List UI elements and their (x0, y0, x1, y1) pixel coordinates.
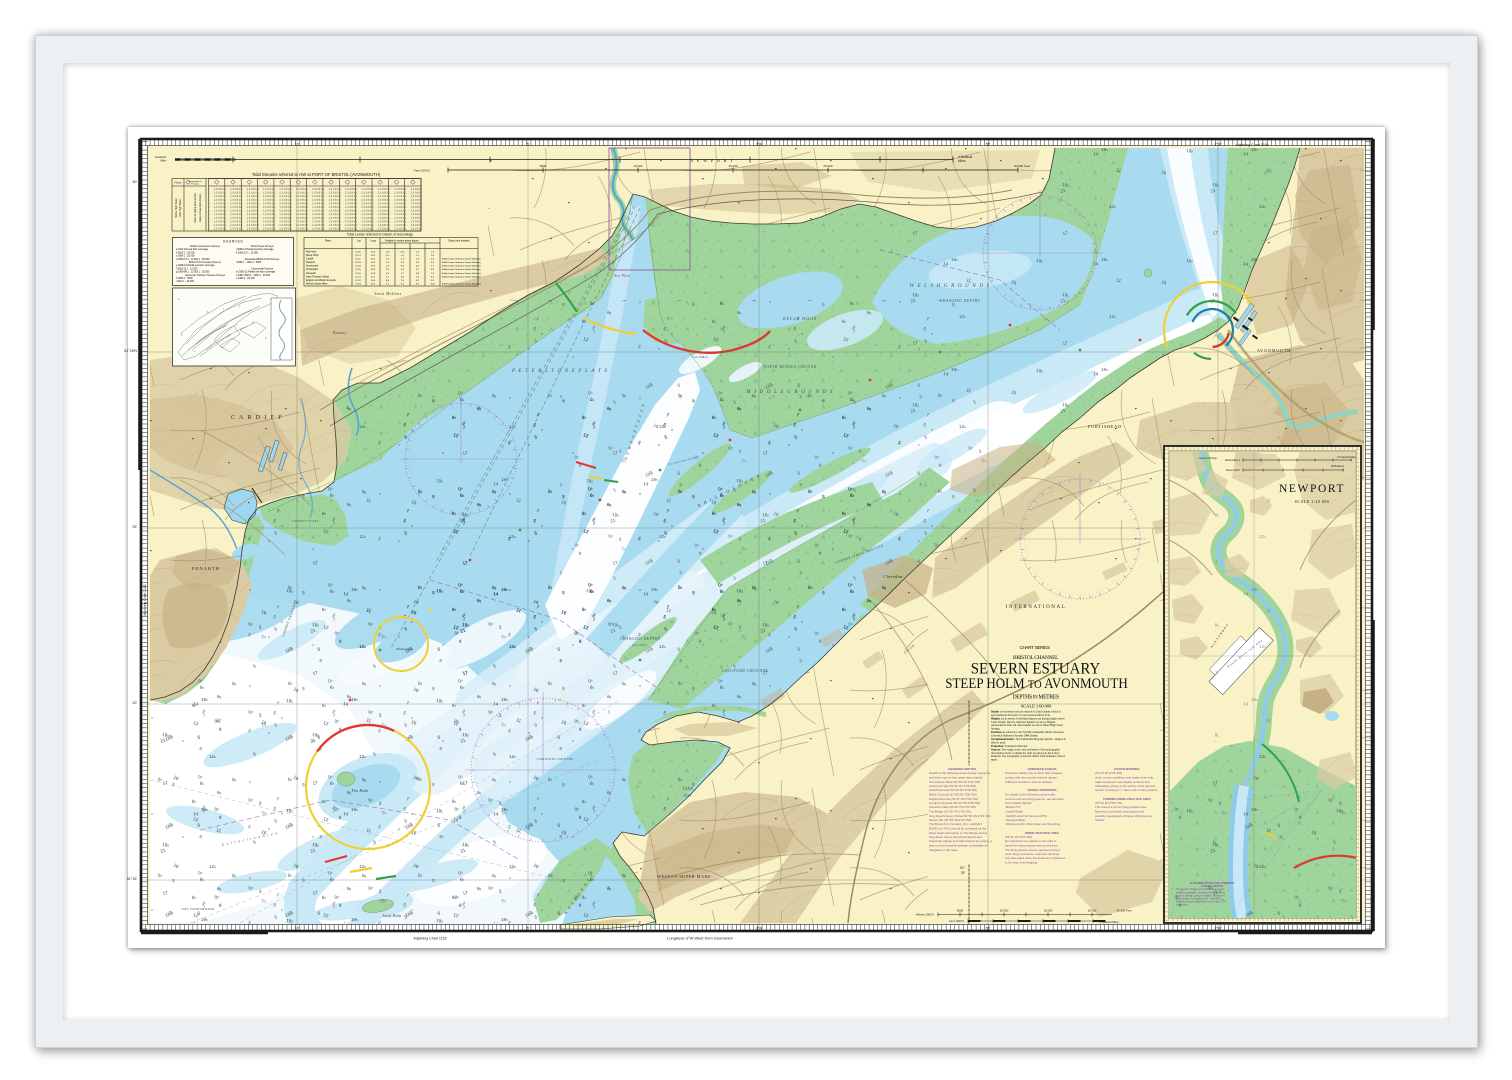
svg-text:3°W: 3°W (756, 927, 763, 931)
svg-text:SAND: SAND (683, 787, 694, 791)
svg-text:-Sharpness Port Information an: -Sharpness Port Information and Reportin… (1005, 822, 1061, 826)
svg-text:51°25′N: 51°25′N (124, 349, 137, 353)
svg-text:NEWPORT: NEWPORT (1279, 483, 1345, 495)
svg-text:5000: 5000 (957, 909, 964, 913)
svg-text:51 22: 51 22 (355, 280, 361, 282)
svg-text:Metres 100 0: Metres 100 0 (1226, 469, 1241, 472)
svg-text:A little below Ordnance Datum: A little below Ordnance Datum (Newlyn) (442, 275, 481, 278)
svg-text:STEEP HOLM TO AVONMOUTH: STEEP HOLM TO AVONMOUTH (945, 676, 1128, 692)
svg-text:51°15′: 51°15′ (127, 877, 137, 881)
svg-text:10 000: 10 000 (633, 164, 643, 168)
svg-text:51 21: 51 21 (355, 255, 361, 257)
svg-text:30 000 Feet: 30 000 Feet (1117, 909, 1132, 913)
svg-text:Clevedon: Clevedon (306, 272, 317, 275)
svg-text:15 000: 15 000 (728, 164, 738, 168)
svg-text:51 23: 51 23 (355, 283, 361, 285)
svg-text:Feet 1000 0: Feet 1000 0 (949, 919, 964, 923)
svg-text:AVONMOUTH: AVONMOUTH (1257, 348, 1291, 353)
svg-text:Clevedon: Clevedon (883, 574, 903, 579)
svg-text:W E L S H G R O U N D S: W E L S H G R O U N D S (910, 284, 991, 289)
svg-text:P E T E R S T O N E F L A T: P E T E R S T O N E F L A T S (511, 369, 608, 374)
svg-text:30′: 30′ (132, 180, 137, 184)
svg-text:Longitude 3°W West from Green: Longitude 3°W West from Greenwich (667, 936, 733, 941)
svg-text:See Plan: See Plan (614, 273, 630, 278)
svg-text:51 21: 51 21 (355, 276, 361, 278)
svg-text:Monkstone: Monkstone (395, 647, 412, 651)
svg-text:2°50′: 2°50′ (1214, 927, 1222, 931)
svg-text:51 20: 51 20 (355, 273, 361, 275)
svg-text:3°W: 3°W (756, 142, 763, 146)
svg-text:PENARTH: PENARTH (192, 566, 220, 571)
svg-text:A little below Ordnance Datum: A little below Ordnance Datum (Newlyn) (442, 282, 481, 285)
svg-text:Usk Patch: Usk Patch (692, 355, 708, 359)
svg-text:Newport Bridge: Newport Bridge (1199, 456, 1217, 460)
svg-text:SEVERN ESTUARY: SEVERN ESTUARY (971, 660, 1101, 677)
svg-text:CHANGING DEPTHS: CHANGING DEPTHS (620, 637, 660, 641)
svg-text:hazard.: hazard. (1095, 818, 1105, 822)
svg-text:Portishead: Portishead (306, 268, 318, 271)
svg-text:51 23: 51 23 (355, 262, 361, 264)
svg-text:NORTH MIDDLE GROUND: NORTH MIDDLE GROUND (762, 365, 817, 369)
svg-text:4 Nautical Miles: 4 Nautical Miles (1099, 920, 1119, 924)
svg-text:After High Water: After High Water (179, 199, 182, 217)
svg-text:1000 Metres: 1000 Metres (1331, 465, 1345, 468)
svg-text:Astronomical Tide. All other h: Astronomical Tide. All other heights are… (991, 724, 1063, 727)
svg-text:20 000 Feet: 20 000 Feet (1014, 164, 1030, 168)
svg-text:Severn Crossing (7.7 miles nor: Severn Crossing (7.7 miles north of this… (1095, 788, 1158, 792)
svg-text:55′: 55′ (986, 142, 991, 146)
svg-text:Position: Position (191, 182, 200, 185)
svg-text:0.5 Nautical Miles: 0.5 Nautical Miles (1337, 456, 1357, 459)
svg-text:to be clear of all shipping.: to be clear of all shipping. (1005, 861, 1038, 865)
svg-text:A little below Ordnance Datum: A little below Ordnance Datum (Newlyn) (442, 268, 481, 271)
svg-text:WELSH HOOK: WELSH HOOK (782, 316, 817, 321)
svg-text:Miles: Miles (958, 159, 966, 163)
svg-text:N E W P O R T: N E W P O R T (690, 158, 734, 163)
svg-text:CHART SERIES: CHART SERIES (1020, 645, 1051, 650)
svg-text:Rumney: Rumney (332, 331, 347, 335)
svg-text:ONE FATHOM BANK: ONE FATHOM BANK (181, 907, 215, 911)
svg-text:10′: 10′ (295, 927, 300, 931)
svg-text:navigation in this area.: navigation in this area. (929, 848, 958, 852)
svg-text:Hours: Hours (175, 181, 183, 185)
svg-text:A little below Ordnance Datum: A little below Ordnance Datum (Newlyn) (442, 265, 481, 268)
svg-text:CARDIFF FLATS: CARDIFF FLATS (292, 519, 319, 523)
svg-text:SCALE 1:20 000: SCALE 1:20 000 (1295, 499, 1330, 504)
svg-text:A little below Ordnance Datum: A little below Ordnance Datum (Newlyn) (442, 258, 481, 261)
svg-text:M I D D L E G R O U N D S: M I D D L E G R O U N D S (745, 390, 833, 395)
svg-text:Sufficient clearance must be a: Sufficient clearance must be allowed. (1005, 780, 1053, 784)
svg-text:Total Levels referred to Datum: Total Levels referred to Datum of Soundi… (347, 233, 413, 237)
svg-text:15 000: 15 000 (1044, 909, 1053, 913)
svg-text:A little below Ordnance Datum: A little below Ordnance Datum (Newlyn) (442, 272, 481, 275)
svg-text:Geographical: Geographical (188, 180, 202, 183)
svg-text:20 000: 20 000 (823, 164, 833, 168)
svg-text:Place: Place (325, 240, 332, 243)
svg-text:WESTON-SUPER-MARE: WESTON-SUPER-MARE (657, 874, 711, 879)
svg-text:25′: 25′ (132, 525, 137, 529)
svg-text:CHANGING DEPTHS: CHANGING DEPTHS (537, 757, 574, 761)
svg-text:55′: 55′ (986, 927, 991, 931)
svg-text:CHANGING DEPTHS: CHANGING DEPTHS (940, 299, 980, 303)
svg-text:(see Note): (see Note) (632, 643, 647, 647)
svg-text:LANGFORD GROUNDS: LANGFORD GROUNDS (721, 669, 769, 673)
svg-text:Tidal Streams referred to HW a: Tidal Streams referred to HW at PORT OF … (252, 172, 381, 177)
svg-text:SOURCES: SOURCES (223, 240, 244, 244)
svg-text:i 2012 1 : 40 000: i 2012 1 : 40 000 (176, 280, 194, 283)
svg-text:20′: 20′ (961, 871, 966, 875)
svg-text:BAY: BAY (684, 794, 692, 798)
svg-text:k 2002-10 1 : 25 000: k 2002-10 1 : 25 000 (236, 251, 259, 254)
svg-text:Nautical M.0.1: Nautical M.0.1 (1225, 459, 1241, 462)
svg-text:maps.: maps. (991, 759, 998, 762)
svg-text:10′: 10′ (295, 142, 300, 146)
svg-text:INTERNATIONAL: INTERNATIONAL (1006, 605, 1067, 610)
svg-text:Newport: Newport (306, 261, 315, 264)
svg-text:SCALE 1:60 000: SCALE 1:60 000 (1021, 703, 1052, 708)
svg-text:51 22: 51 22 (355, 259, 361, 261)
svg-text:Weston-Super-Mare: Weston-Super-Mare (306, 282, 328, 285)
svg-text:Heights in metres above datum: Heights in metres above datum (385, 240, 418, 243)
svg-text:Flat Holm: Flat Holm (351, 789, 369, 793)
svg-text:Rates at spring tides (knots): Rates at spring tides (knots) (194, 193, 197, 223)
svg-text:DEPTHS IN METRES: DEPTHS IN METRES (1013, 695, 1060, 701)
svg-text:C A R D I F F: C A R D I F F (231, 415, 283, 421)
svg-text:Before High Water: Before High Water (175, 198, 178, 218)
svg-text:5′: 5′ (527, 927, 530, 931)
svg-text:5000: 5000 (540, 164, 547, 168)
svg-text:20′: 20′ (132, 701, 137, 705)
svg-text:Datum and remarks: Datum and remarks (449, 240, 471, 243)
svg-text:51°: 51° (960, 866, 966, 870)
svg-text:51 25: 51 25 (355, 269, 361, 271)
svg-text:information.: information. (1176, 904, 1189, 907)
svg-text:Long: Long (370, 240, 376, 243)
svg-text:Mile: Mile (160, 159, 166, 163)
svg-text:Adjoining Chart 1166: Adjoining Chart 1166 (1235, 143, 1268, 147)
svg-text:Flat Holm: Flat Holm (306, 251, 316, 254)
svg-text:2°50′: 2°50′ (1214, 142, 1222, 146)
svg-text:20 000: 20 000 (1088, 909, 1097, 913)
svg-text:Metres 1000 0: Metres 1000 0 (916, 913, 934, 917)
svg-text:PORTISHEAD: PORTISHEAD (1088, 424, 1122, 429)
svg-text:51 24: 51 24 (355, 266, 361, 268)
svg-text:5′: 5′ (527, 142, 530, 146)
svg-text:51 20: 51 20 (355, 252, 361, 254)
svg-text:l 2006 1 : 1000 1 : 5: l 2006 1 : 1000 1 : 5000 (236, 261, 262, 264)
svg-text:A little below Ordnance Datum: A little below Ordnance Datum (Newlyn) (442, 261, 481, 264)
svg-text:Steep Holm: Steep Holm (383, 914, 402, 918)
svg-text:o 1963 1 : 15 000: o 1963 1 : 15 000 (236, 277, 255, 280)
svg-text:Saint Mellons: Saint Mellons (374, 291, 401, 296)
svg-text:Diagram. The topography is der: Diagram. The topography is derived chief… (991, 755, 1066, 758)
svg-text:Feet 1000 0: Feet 1000 0 (414, 168, 430, 172)
svg-text:Adjoining Chart 1182: Adjoining Chart 1182 (143, 584, 147, 616)
svg-text:Rates at neap tides (knots): Rates at neap tides (knots) (199, 194, 202, 223)
svg-text:10 000: 10 000 (1000, 909, 1009, 913)
svg-text:Lat: Lat (357, 240, 361, 243)
svg-text:Adjoining Chart 1152: Adjoining Chart 1152 (413, 937, 446, 941)
